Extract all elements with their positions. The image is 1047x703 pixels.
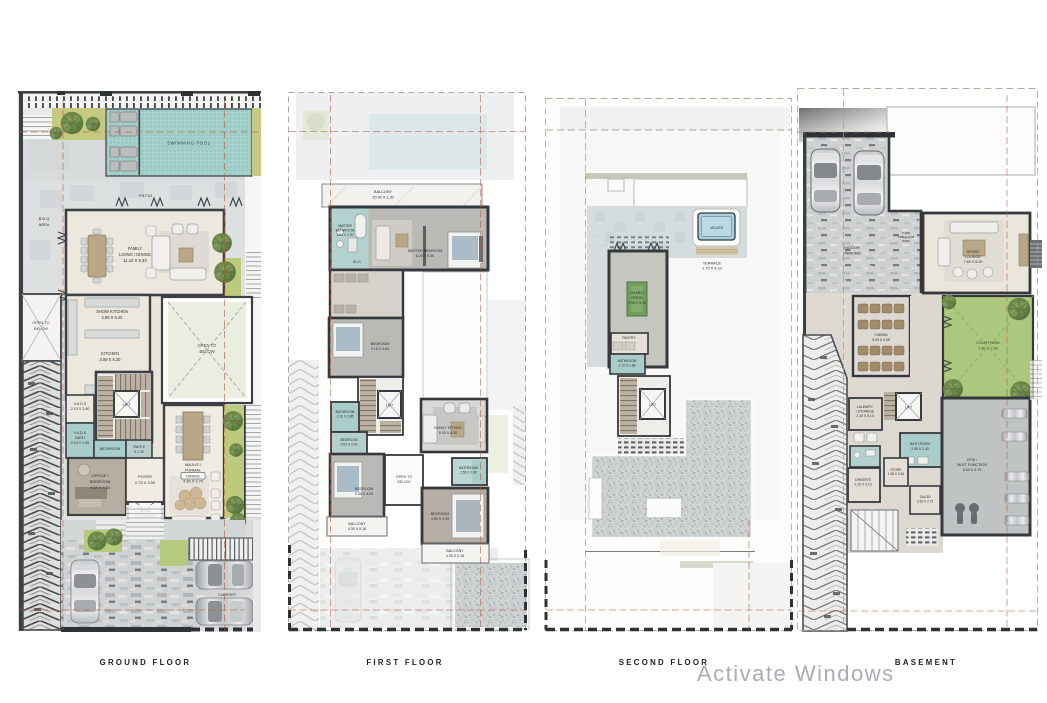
svg-text:OFFICE /: OFFICE / — [92, 473, 110, 478]
svg-text:7.60 X 6.00: 7.60 X 6.00 — [964, 260, 983, 264]
svg-text:CINEMA: CINEMA — [874, 333, 888, 337]
svg-text:BASEMENT: BASEMENT — [895, 658, 957, 667]
svg-text:FAMILY: FAMILY — [128, 246, 143, 251]
svg-text:BATHROOM: BATHROOM — [618, 359, 637, 363]
svg-text:4.00 X 9.70: 4.00 X 9.70 — [963, 468, 982, 472]
svg-text:2.73 X 3.00: 2.73 X 3.00 — [135, 480, 156, 485]
svg-text:BALCONY: BALCONY — [446, 549, 464, 553]
svg-text:LIFT: LIFT — [905, 406, 913, 410]
svg-text:BATHROOM: BATHROOM — [459, 466, 478, 470]
svg-text:BATH ROOM: BATH ROOM — [910, 442, 930, 446]
svg-text:4.30 X 4.00: 4.30 X 4.00 — [355, 492, 373, 496]
svg-text:GROUND FLOOR: GROUND FLOOR — [100, 658, 192, 667]
svg-text:SALON: SALON — [920, 495, 932, 499]
svg-text:MASTER: MASTER — [338, 224, 352, 228]
svg-text:OPEN TO: OPEN TO — [198, 343, 217, 348]
svg-text:V.A D S: V.A D S — [74, 431, 87, 435]
svg-text:Activate Windows: Activate Windows — [697, 661, 895, 686]
svg-text:2.10 X 2.85: 2.10 X 2.85 — [337, 415, 354, 419]
svg-text:4.30 X 5.18: 4.30 X 5.18 — [348, 527, 366, 531]
svg-text:2.55 X 2.73: 2.55 X 2.73 — [917, 500, 934, 504]
svg-text:LIVING / DINING: LIVING / DINING — [119, 252, 151, 257]
svg-text:2.98 X 5.20: 2.98 X 5.20 — [102, 315, 124, 320]
svg-text:BELOW: BELOW — [397, 480, 411, 484]
svg-text:W.I.C: W.I.C — [353, 260, 362, 264]
svg-text:10.90 X 1.30: 10.90 X 1.30 — [372, 196, 394, 200]
svg-text:FOYER: FOYER — [138, 474, 152, 479]
svg-text:7.50 X 7.60: 7.50 X 7.60 — [978, 347, 997, 351]
svg-text:BEDROOM: BEDROOM — [90, 479, 111, 484]
svg-text:MAJLIS /: MAJLIS / — [185, 462, 202, 467]
svg-text:OPEN TO: OPEN TO — [396, 475, 413, 479]
svg-text:BELOW: BELOW — [34, 326, 48, 331]
svg-text:3.89 X 5.20: 3.89 X 5.20 — [100, 357, 122, 362]
svg-text:GYM /: GYM / — [967, 458, 978, 462]
svg-text:2.10 X 3.10: 2.10 X 3.10 — [854, 483, 871, 487]
svg-text:PATIO: PATIO — [139, 193, 152, 198]
svg-text:PANTRY: PANTRY — [622, 336, 636, 340]
svg-text:1.55 X 2.80: 1.55 X 2.80 — [460, 471, 477, 475]
svg-text:4.33 X 4.00: 4.33 X 4.00 — [90, 485, 111, 490]
svg-text:SECOND FLOOR: SECOND FLOOR — [619, 658, 709, 667]
svg-text:2.84 X 4.30: 2.84 X 4.30 — [337, 233, 354, 237]
svg-text:4.30 X 5.18: 4.30 X 5.18 — [446, 554, 464, 558]
svg-text:6.20 X 6.00: 6.20 X 6.00 — [416, 254, 434, 258]
svg-text:4.50 X 4.00: 4.50 X 4.00 — [431, 517, 449, 521]
svg-text:2.15 X 1.88: 2.15 X 1.88 — [619, 364, 636, 368]
svg-text:4.18 X 4.63: 4.18 X 4.63 — [371, 347, 389, 351]
svg-text:BEDROOM: BEDROOM — [355, 487, 374, 491]
svg-text:BATH: BATH — [75, 436, 85, 440]
svg-text:OPEN TO: OPEN TO — [32, 320, 49, 325]
svg-text:SPORT: SPORT — [967, 250, 980, 254]
svg-text:BEDROOM: BEDROOM — [431, 512, 450, 516]
svg-text:2.10 X 5.13: 2.10 X 5.13 — [856, 414, 873, 418]
svg-text:2.10 X 1.95: 2.10 X 1.95 — [71, 441, 89, 445]
svg-text:BEDROOM: BEDROOM — [340, 438, 357, 442]
svg-text:FORMAL: FORMAL — [185, 468, 202, 473]
svg-text:1.75 X 4.10: 1.75 X 4.10 — [702, 267, 721, 271]
svg-text:11.10 X 6.33: 11.10 X 6.33 — [123, 258, 147, 263]
svg-text:BELOW: BELOW — [199, 349, 214, 354]
svg-text:SHOW KITCHEN: SHOW KITCHEN — [96, 309, 128, 314]
svg-text:BALCONY: BALCONY — [348, 522, 366, 526]
svg-text:LIFT: LIFT — [649, 403, 657, 407]
svg-text:KITCHEN: KITCHEN — [101, 351, 119, 356]
svg-text:SWIMMING POOL: SWIMMING POOL — [167, 141, 210, 146]
svg-text:AREA: AREA — [39, 222, 50, 227]
svg-text:PARK: PARK — [902, 239, 910, 243]
svg-text:INDOOR: INDOOR — [844, 245, 860, 250]
svg-text:DRIVER'S: DRIVER'S — [855, 478, 871, 482]
svg-text:BEDROOM: BEDROOM — [371, 342, 390, 346]
svg-text:2.55 X 2.40: 2.55 X 2.40 — [911, 447, 928, 451]
svg-text:5.03 X 4.30: 5.03 X 4.30 — [439, 431, 457, 435]
svg-text:CARPORT: CARPORT — [218, 593, 237, 597]
svg-text:V.A D S: V.A D S — [74, 402, 87, 406]
svg-text:2.63 X 3.20: 2.63 X 3.20 — [341, 443, 358, 447]
svg-text:GAMES: GAMES — [631, 291, 645, 295]
svg-text:PARKING: PARKING — [843, 251, 860, 256]
svg-text:2.10 X 2.60: 2.10 X 2.60 — [71, 407, 90, 411]
svg-text:BALCONY: BALCONY — [374, 190, 393, 194]
svg-text:X 1.20: X 1.20 — [134, 450, 144, 454]
svg-text:BATHROOM: BATHROOM — [100, 447, 121, 451]
svg-text:5.00 X 4.08: 5.00 X 4.08 — [872, 338, 889, 342]
svg-text:BATHROOM: BATHROOM — [336, 410, 355, 414]
svg-text:BATHROOM: BATHROOM — [336, 229, 355, 233]
svg-text:/ STORAGE: / STORAGE — [856, 410, 875, 414]
svg-text:LIFT: LIFT — [123, 403, 131, 407]
svg-text:COURTYARD: COURTYARD — [976, 341, 1000, 345]
svg-text:LIFT: LIFT — [386, 404, 394, 408]
svg-text:JACUZZI: JACUZZI — [710, 226, 723, 230]
svg-text:3.93 X 5.10: 3.93 X 5.10 — [628, 301, 646, 305]
svg-text:B.B.Q: B.B.Q — [39, 216, 50, 221]
svg-text:4.35 X 9.70: 4.35 X 9.70 — [183, 479, 204, 484]
svg-text:ROOM: ROOM — [631, 296, 642, 300]
svg-text:MULT FUNCTION: MULT FUNCTION — [957, 463, 987, 467]
svg-text:OW.R E: OW.R E — [133, 445, 146, 449]
svg-text:TERRACE: TERRACE — [703, 262, 722, 266]
svg-text:LOUNGE: LOUNGE — [965, 255, 981, 259]
svg-text:1.55 X 2.40: 1.55 X 2.40 — [888, 472, 905, 476]
svg-text:MASTER BEDROOM: MASTER BEDROOM — [408, 249, 443, 253]
svg-text:FIRST FLOOR: FIRST FLOOR — [366, 658, 443, 667]
svg-text:LAUNDRY: LAUNDRY — [857, 405, 874, 409]
svg-text:FAMILY SITTING: FAMILY SITTING — [434, 426, 462, 430]
